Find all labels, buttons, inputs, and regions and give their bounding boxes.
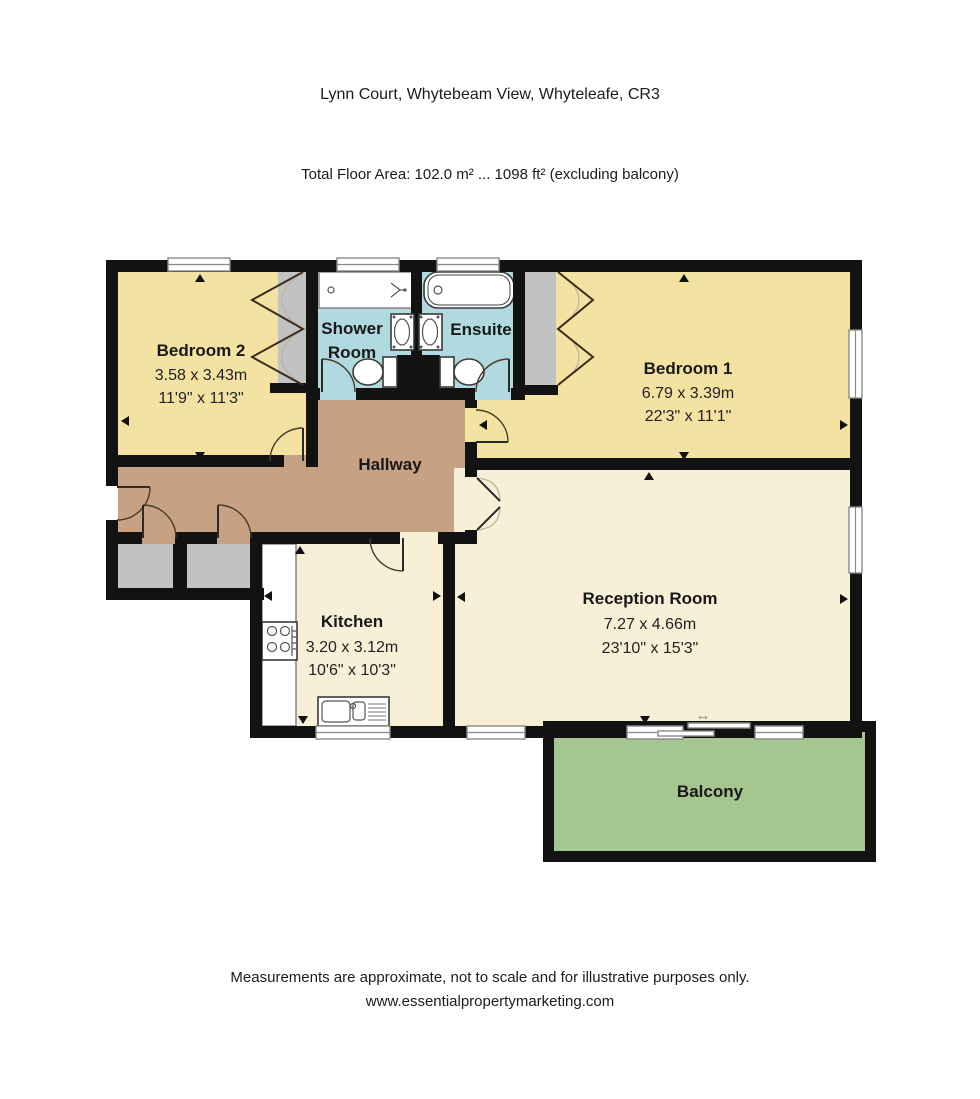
bathtub-icon	[424, 272, 514, 308]
bedroom-2-metric: 3.58 x 3.43m	[155, 367, 248, 384]
reception-room-imperial: 23'10" x 15'3"	[602, 640, 699, 657]
window-symbol-bedroom2-top	[168, 258, 230, 271]
ensuite-label: Ensuite	[450, 320, 511, 339]
ensuite-door-opening	[475, 388, 511, 400]
shower-toilet-cistern	[383, 357, 397, 387]
kitchen-metric: 3.20 x 3.12m	[306, 639, 399, 656]
closet-1-door-opening	[142, 532, 175, 544]
window-symbol-ensuite-top	[437, 258, 499, 271]
bedroom-2-imperial: 11'9" x 11'3"	[158, 390, 243, 407]
sliding-door-arrow-icon: ↔	[696, 707, 711, 724]
bedroom-1-metric: 6.79 x 3.39m	[642, 385, 735, 402]
window-symbol-reception-right	[849, 507, 862, 573]
page-title: Lynn Court, Whytebeam View, Whyteleafe, …	[0, 86, 980, 104]
reception-room-label: Reception Room	[582, 589, 717, 608]
reception-double-door-opening	[465, 477, 477, 530]
shower-room-label-line2: Room	[328, 343, 376, 362]
kitchen-imperial: 10'6" x 10'3"	[308, 662, 396, 679]
floor-plan-canvas: ↔	[0, 250, 980, 870]
window-symbol-shower-top	[337, 258, 399, 271]
window-symbol-bedroom1-right	[849, 330, 862, 398]
bedroom-2-label: Bedroom 2	[157, 341, 246, 360]
storage-closet-2	[186, 543, 251, 590]
ensuite-toilet-icon	[454, 359, 484, 385]
entrance-door-opening	[106, 486, 118, 520]
kitchen-door-opening	[400, 532, 438, 544]
bedroom-1-label: Bedroom 1	[644, 359, 733, 378]
disclaimer-line: Measurements are approximate, not to sca…	[0, 966, 980, 990]
shower-toilet-icon	[353, 359, 383, 385]
bedroom-1-nook-floor	[476, 395, 524, 463]
hallway-label: Hallway	[358, 455, 422, 474]
shower-room-label-line1: Shower	[321, 319, 383, 338]
bedroom-1-wardrobe	[521, 270, 556, 385]
shower-tray-icon	[319, 272, 412, 308]
floorplan-page: { "header": { "title": "Lynn Court, Whyt…	[0, 0, 980, 1099]
reception-room-metric: 7.27 x 4.66m	[604, 616, 697, 633]
ensuite-toilet-cistern	[440, 357, 454, 387]
closet-2-door-opening	[217, 532, 250, 544]
bedroom-1-imperial: 22'3" x 11'1"	[645, 408, 732, 425]
balcony-label: Balcony	[677, 782, 744, 801]
window-symbol-reception-bottom-3	[755, 726, 803, 739]
kitchen-label: Kitchen	[321, 612, 383, 631]
website-url: www.essentialpropertymarketing.com	[0, 990, 980, 1014]
shower-door-opening	[320, 388, 356, 400]
total-floor-area: Total Floor Area: 102.0 m² ... 1098 ft² …	[0, 166, 980, 183]
window-symbol-reception-bottom-1	[467, 726, 525, 739]
bedroom-2-wardrobe	[278, 270, 307, 385]
window-symbol-kitchen-bottom	[316, 726, 390, 739]
disclaimer: Measurements are approximate, not to sca…	[0, 966, 980, 1014]
bedroom-1-door-opening	[465, 408, 477, 442]
storage-closet-1	[117, 543, 174, 590]
